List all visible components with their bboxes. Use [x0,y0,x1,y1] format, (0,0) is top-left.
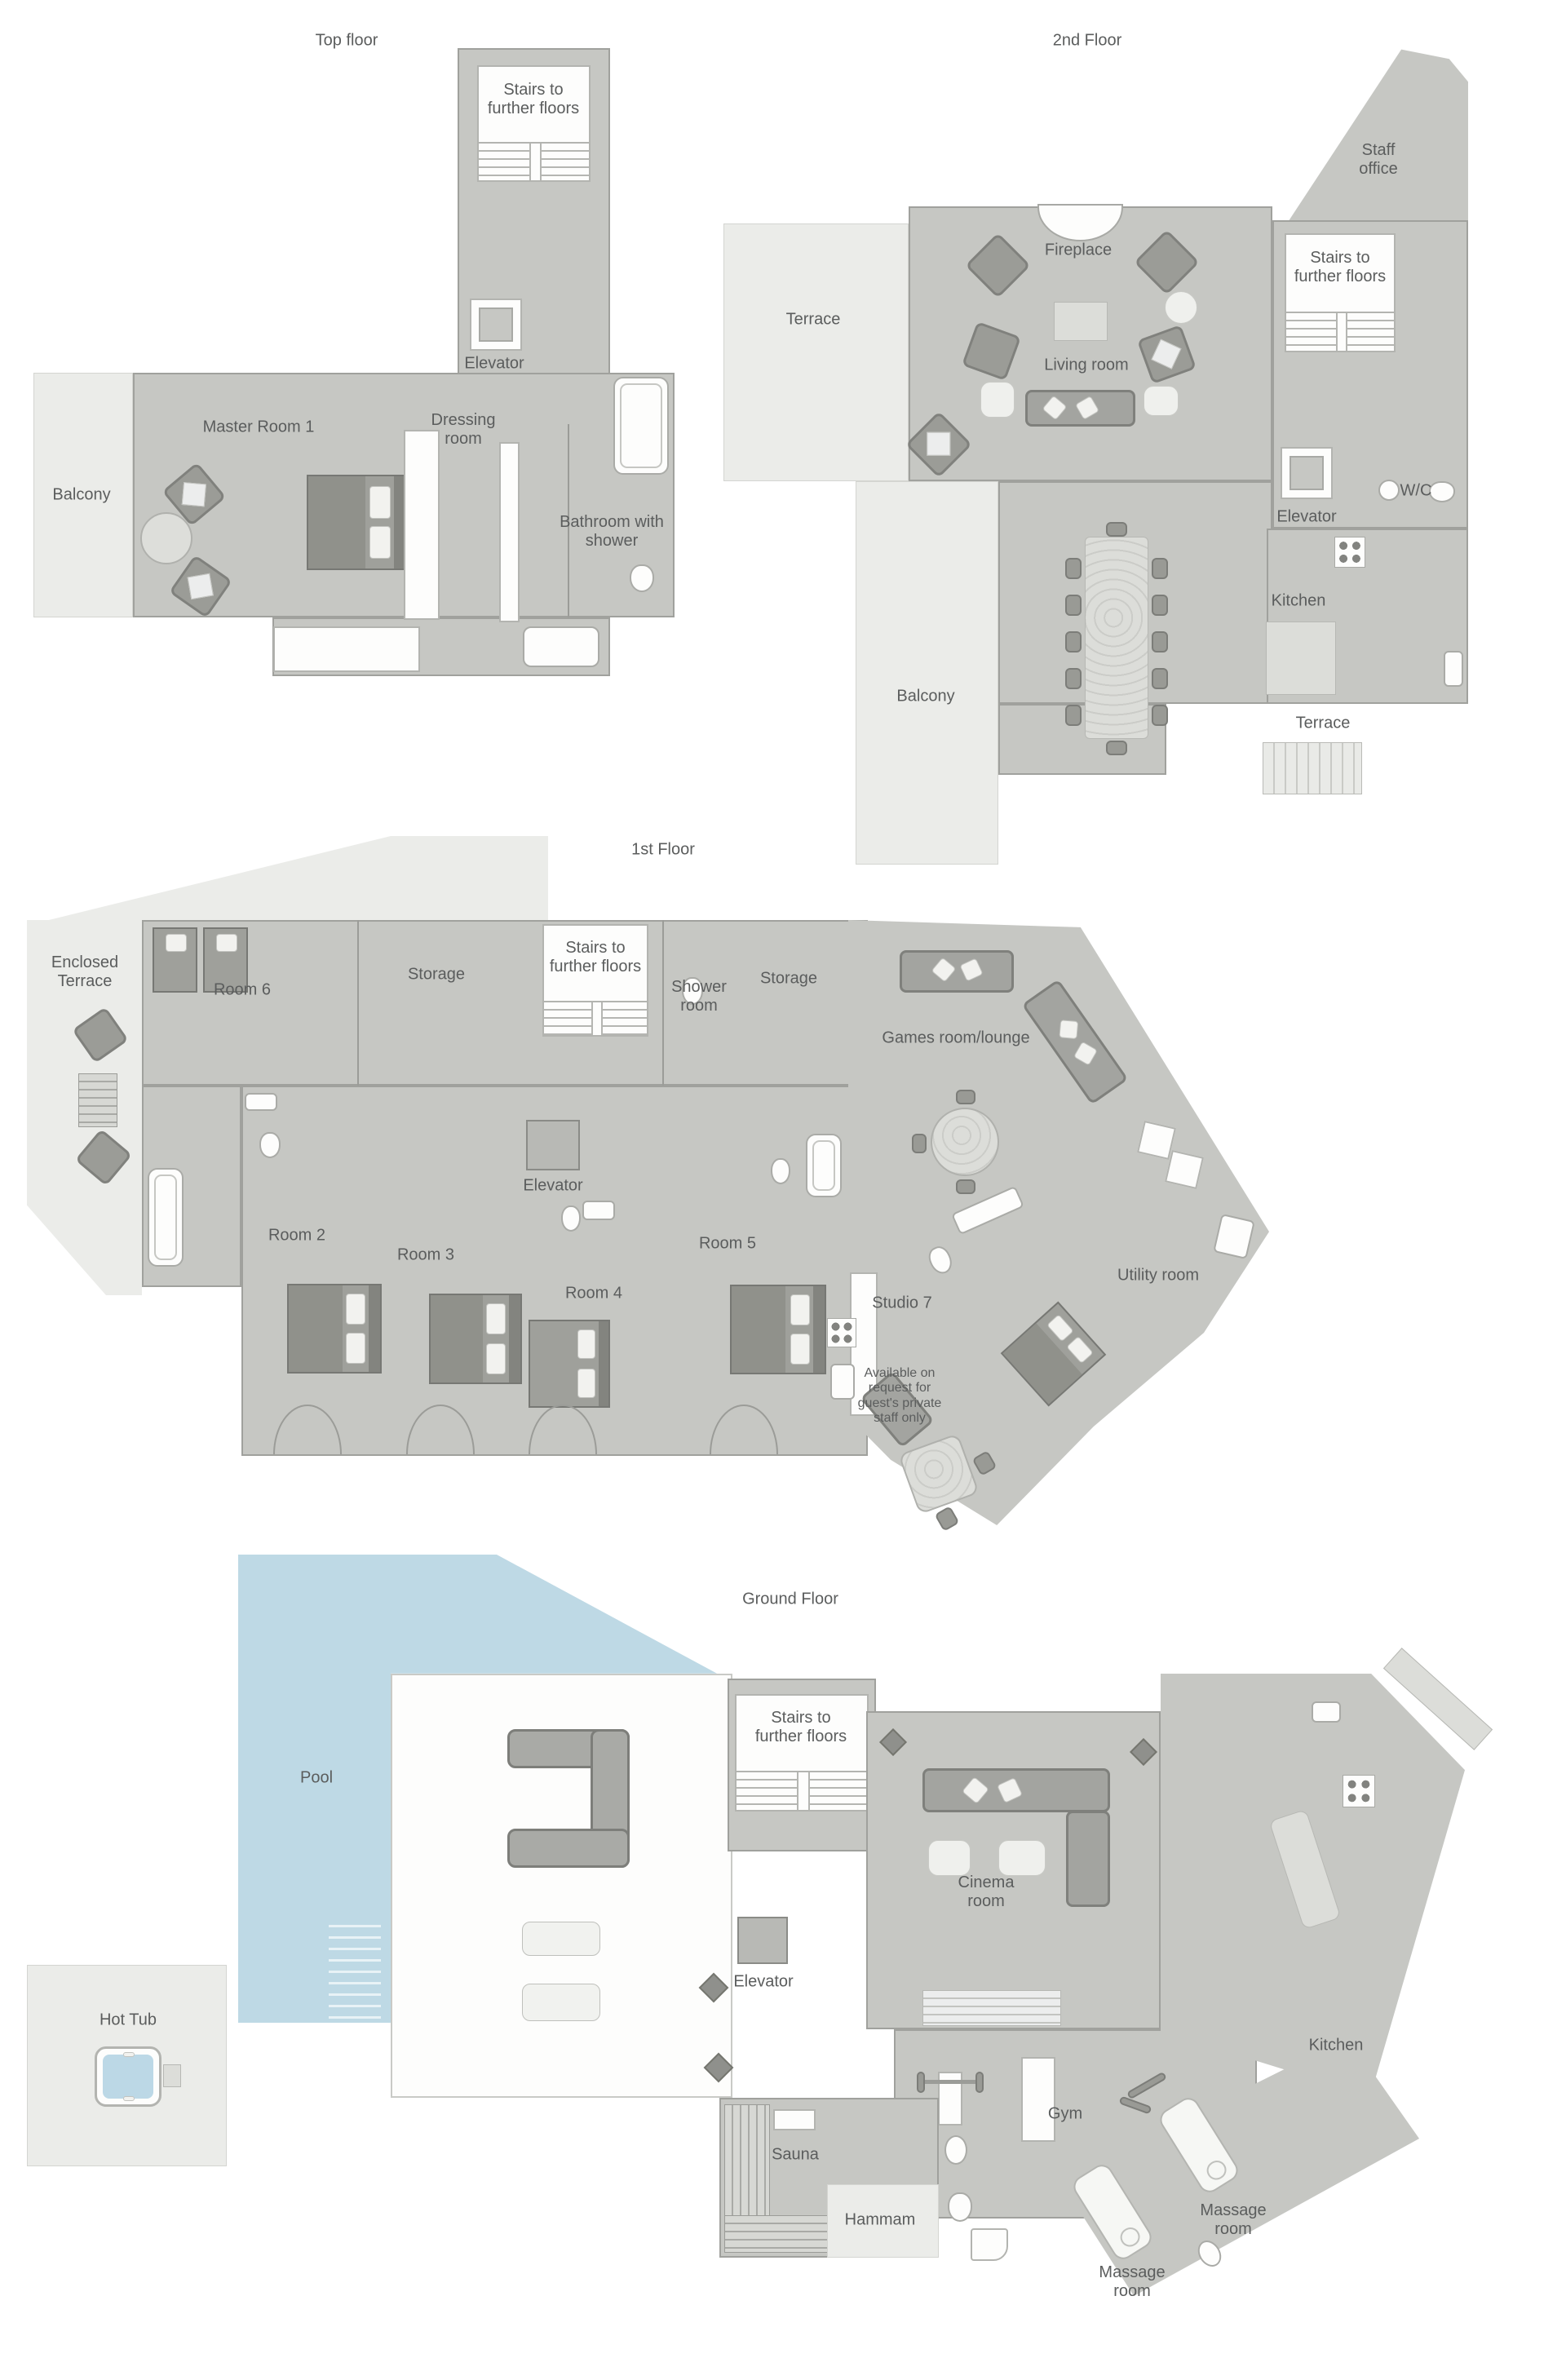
barbell-icon [920,2080,980,2084]
massage-room-right-label: Massage room [1191,2201,1276,2239]
weight-plate-icon [917,2072,925,2093]
stairs-icon [735,1772,869,1812]
treadmill-icon [1021,2057,1055,2142]
lounger-icon [522,1922,600,1956]
toilet-icon [948,2192,972,2222]
floor-ground: Ground Floor Pool Hot Tub Stairs to furt… [0,0,1566,2380]
sink-icon [1312,1701,1341,1723]
kitchen-label: Kitchen [1272,592,1326,611]
cinema-label: Cinema room [945,1873,1027,1911]
sauna-stove-icon [773,2109,816,2130]
elevator-label: Elevator [1276,508,1336,527]
dressing-room-label: Dressing room [426,411,501,449]
floor-first-title: 1st Floor [631,841,695,860]
hot-tub-step [163,2064,181,2087]
enclosed-terrace-label: Enclosed Terrace [39,953,130,991]
living-room-label: Living room [1044,356,1128,375]
gym-label: Gym [1048,2105,1082,2124]
floor-top-title: Top floor [316,32,378,51]
utility-room-label: Utility room [1117,1267,1199,1285]
sauna-label: Sauna [772,2146,819,2165]
storage-label: Storage [408,966,465,984]
pool-steps-icon [329,1925,381,2021]
room6-label: Room 6 [214,981,271,1000]
staff-office-label: Staff office [1343,141,1413,179]
kitchen-label: Kitchen [1309,2037,1364,2055]
cinema-sofa-icon [1066,1811,1110,1907]
cinema-sofa-icon [922,1768,1110,1812]
shower-icon [971,2228,1008,2261]
sink-icon [944,2135,967,2165]
balcony-label: Balcony [52,486,110,505]
floor-second-title: 2nd Floor [1053,32,1122,51]
hot-tub-label: Hot Tub [100,2011,157,2030]
elevator-label: Elevator [733,1973,793,1992]
stairs-label: Stairs to further floors [1290,249,1390,286]
hammam-label: Hammam [845,2211,916,2230]
stove-icon [1343,1775,1375,1807]
hot-tub-icon [95,2046,161,2107]
floor-ground-title: Ground Floor [742,1590,838,1609]
massage-room-left-label: Massage room [1090,2263,1174,2301]
room5-label: Room 5 [699,1235,756,1254]
ottoman-icon [998,1840,1046,1876]
terrace-lower-label: Terrace [1296,714,1351,733]
room3-label: Room 3 [397,1246,454,1265]
elevator-label: Elevator [464,355,524,374]
games-room-label: Games room/lounge [882,1029,1029,1048]
studio7-label: Studio 7 [872,1294,931,1313]
pool-label: Pool [300,1769,333,1788]
shower-room-label: Shower room [662,978,736,1015]
storage2-label: Storage [760,970,817,989]
deck-sofa-icon [507,1829,630,1868]
bathroom-label: Bathroom with shower [558,513,666,551]
fireplace-label: Fireplace [1045,241,1112,260]
studio-note: Available on request for guest's private… [852,1366,948,1427]
stairs-label: Stairs to further floors [484,81,583,118]
ottoman-icon [928,1840,971,1876]
elevator-icon [737,1917,788,1964]
balcony-label: Balcony [896,688,954,706]
wc-label: W/C [1400,482,1432,501]
stairs-label: Stairs to further floors [546,939,644,976]
media-console-icon [922,1990,1061,2026]
weight-plate-icon [975,2072,984,2093]
room4-label: Room 4 [565,1285,622,1303]
floorplan-canvas: Top floor Stairs to further floors Eleva… [0,0,1566,2380]
master-room-label: Master Room 1 [203,418,315,437]
stairs-label: Stairs to further floors [751,1709,851,1746]
room2-label: Room 2 [268,1227,325,1245]
elevator-label: Elevator [523,1177,582,1196]
lounger-icon [522,1984,600,2021]
terrace-label: Terrace [786,311,841,330]
